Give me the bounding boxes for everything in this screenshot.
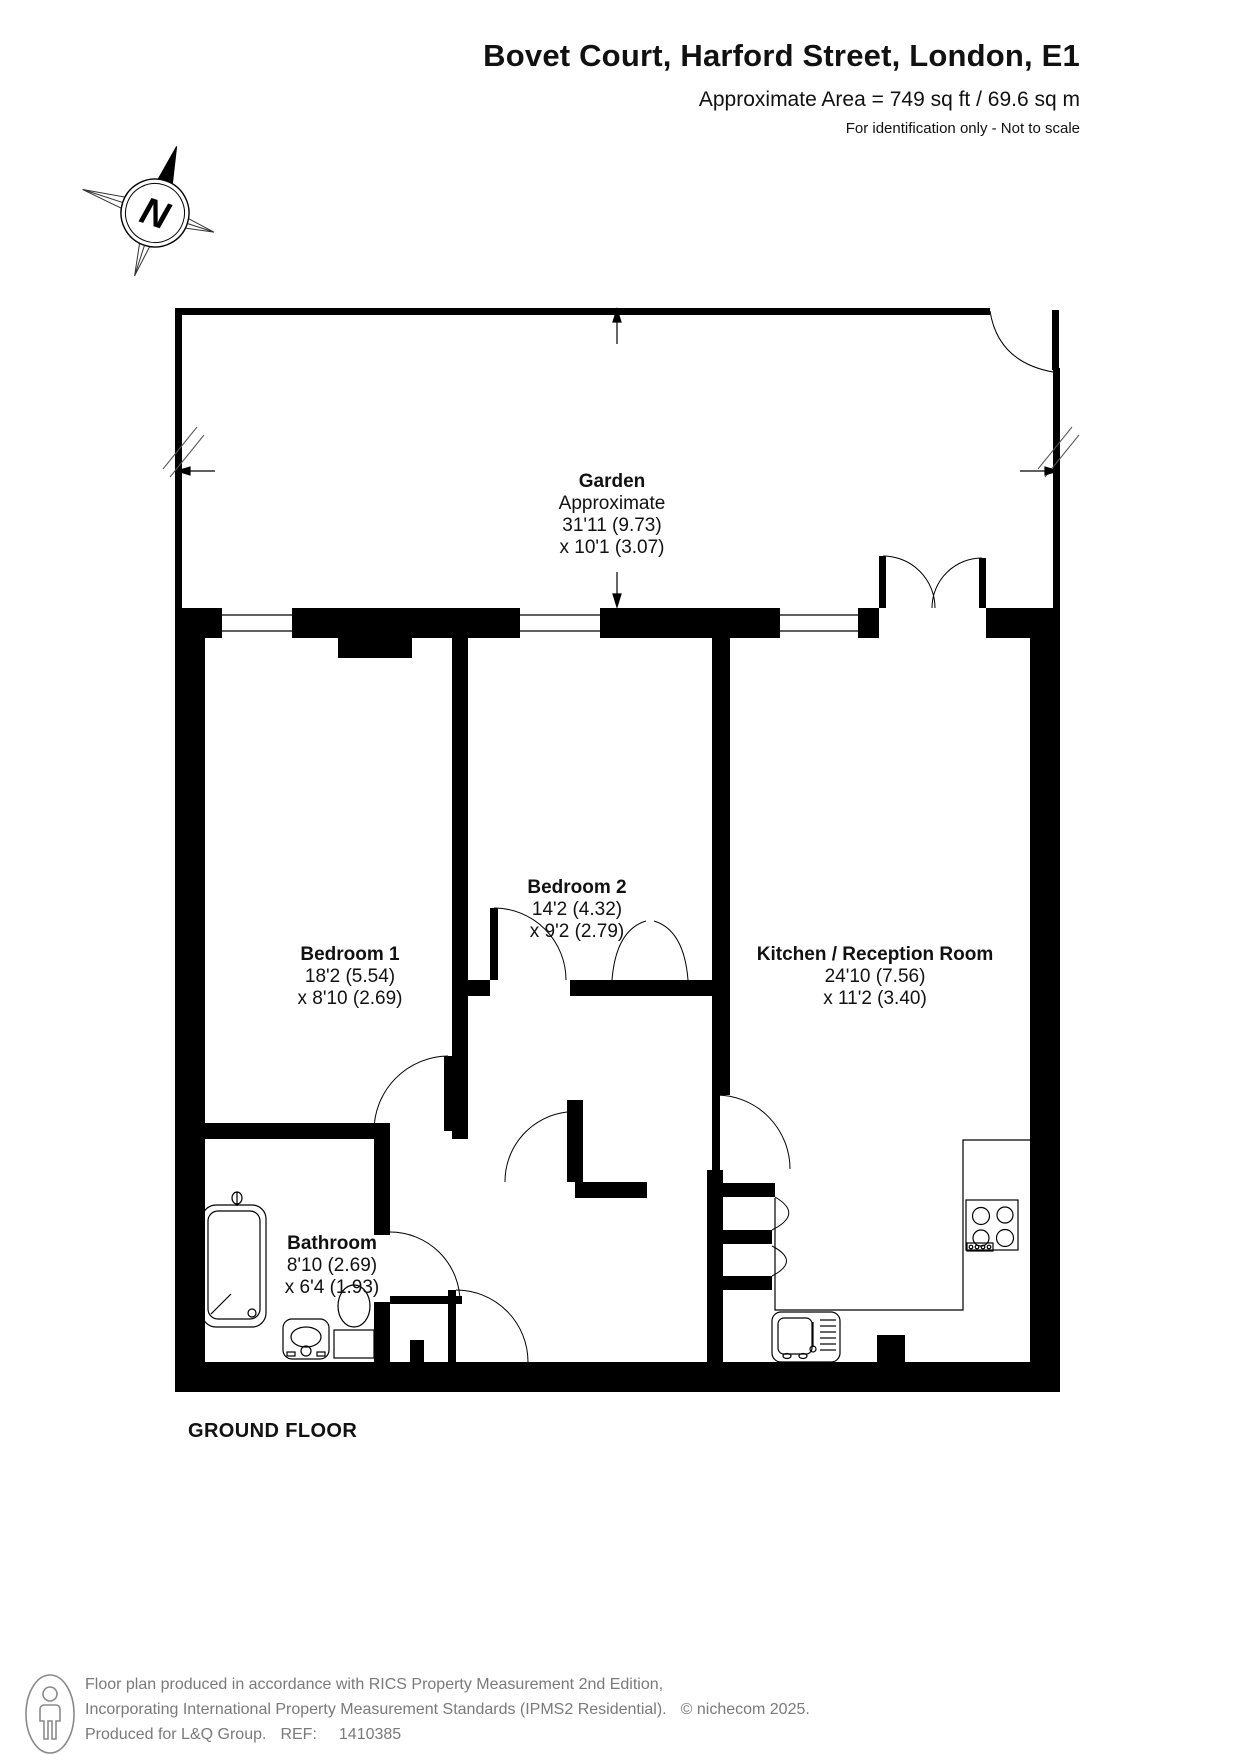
bedroom2-label: Bedroom 2 14'2 (4.32) x 9'2 (2.79) xyxy=(527,877,626,943)
garden-gate-door-arc xyxy=(990,311,1053,372)
kitchen-sink-icon xyxy=(772,1312,840,1362)
footer-ref-label: REF: xyxy=(280,1726,316,1743)
bedroom1-dim2: x 8'10 (2.69) xyxy=(297,988,402,1010)
washbasin-icon xyxy=(283,1319,329,1359)
footer-disclaimer: Floor plan produced in accordance with R… xyxy=(85,1672,810,1747)
disclaimer-note: For identification only - Not to scale xyxy=(846,120,1080,137)
wall-break-marks xyxy=(163,427,1079,477)
dimension-arrows xyxy=(177,309,1058,607)
person-logo-icon xyxy=(24,1672,78,1755)
bedroom2-dim2: x 9'2 (2.79) xyxy=(527,921,626,943)
floorplan-page: N xyxy=(0,0,1241,1755)
garden-dim2: x 10'1 (3.07) xyxy=(559,537,666,559)
kitchen-reception-name: Kitchen / Reception Room xyxy=(757,944,993,966)
footer-copyright: © nichecom 2025. xyxy=(681,1701,810,1718)
bathroom-dim2: x 6'4 (1.93) xyxy=(285,1277,379,1299)
footer-ref-value: 1410385 xyxy=(339,1726,401,1743)
footer-line1: Floor plan produced in accordance with R… xyxy=(85,1672,810,1697)
compass-icon: N xyxy=(62,123,235,295)
hob-icon xyxy=(966,1200,1018,1251)
kitchen-reception-label: Kitchen / Reception Room 24'10 (7.56) x … xyxy=(757,944,993,1010)
garden-label: Garden Approximate 31'11 (9.73) x 10'1 (… xyxy=(559,471,666,559)
page-title: Bovet Court, Harford Street, London, E1 xyxy=(483,38,1080,74)
bathroom-dim1: 8'10 (2.69) xyxy=(285,1255,379,1277)
bedroom2-name: Bedroom 2 xyxy=(527,877,626,899)
bathroom-label: Bathroom 8'10 (2.69) x 6'4 (1.93) xyxy=(285,1233,379,1299)
kitchen-counter xyxy=(775,1140,1030,1310)
kitchen-reception-dim2: x 11'2 (3.40) xyxy=(757,988,993,1010)
bedroom2-dim1: 14'2 (4.32) xyxy=(527,899,626,921)
bedroom1-label: Bedroom 1 18'2 (5.54) x 8'10 (2.69) xyxy=(297,944,402,1010)
approximate-area: Approximate Area = 749 sq ft / 69.6 sq m xyxy=(699,88,1080,112)
bathtub-icon xyxy=(202,1192,266,1327)
bathroom-name: Bathroom xyxy=(285,1233,379,1255)
bedroom1-name: Bedroom 1 xyxy=(297,944,402,966)
footer-line2: Incorporating International Property Mea… xyxy=(85,1701,667,1718)
floor-name: GROUND FLOOR xyxy=(188,1420,357,1443)
garden-dim1: 31'11 (9.73) xyxy=(559,515,666,537)
garden-name: Garden xyxy=(559,471,666,493)
kitchen-reception-dim1: 24'10 (7.56) xyxy=(757,966,993,988)
footer-produced-for: Produced for L&Q Group. xyxy=(85,1726,266,1743)
bedroom1-dim1: 18'2 (5.54) xyxy=(297,966,402,988)
footer-line3-wrap: Produced for L&Q Group.REF:1410385 xyxy=(85,1722,810,1747)
garden-qualifier: Approximate xyxy=(559,493,666,515)
footer-line2-wrap: Incorporating International Property Mea… xyxy=(85,1697,810,1722)
